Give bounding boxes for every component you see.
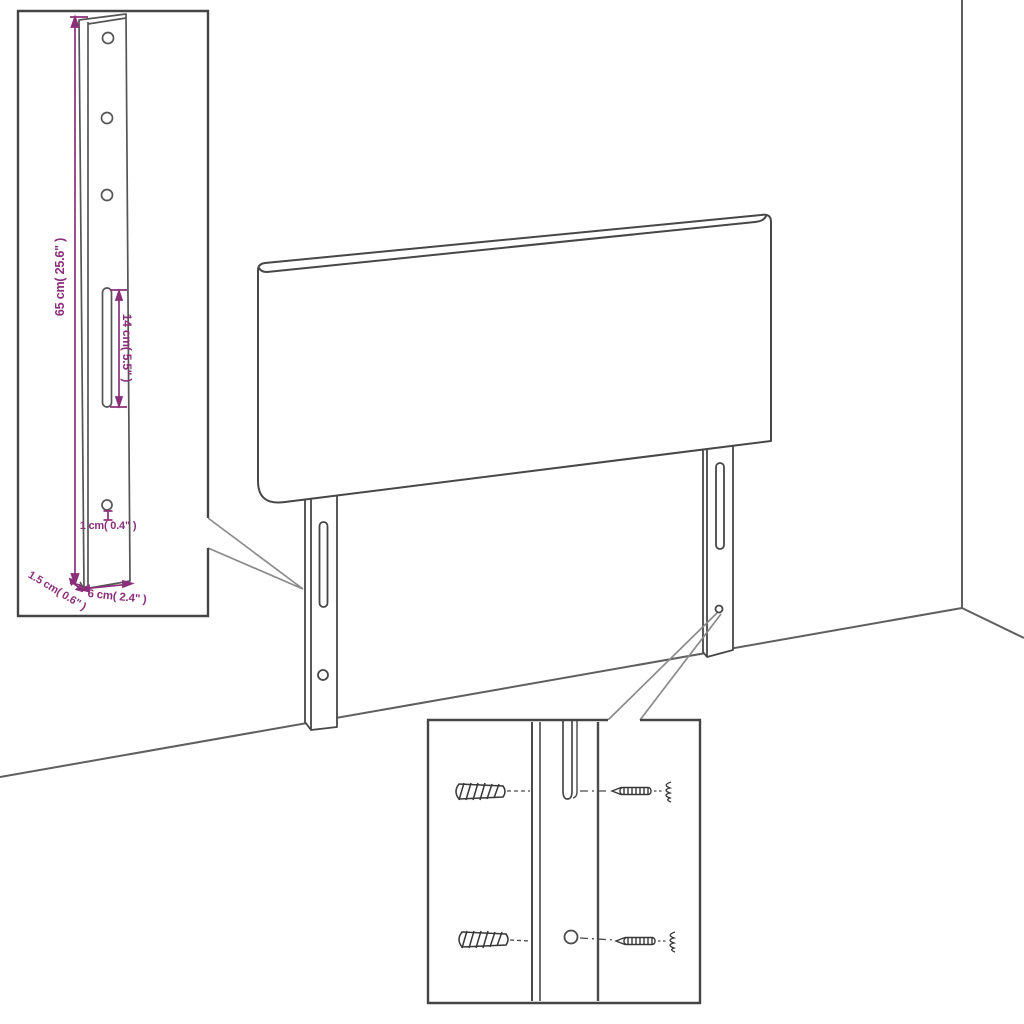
leg-left-body (305, 470, 337, 730)
dimension-label-height: 65 cm( 25.6" ) (53, 238, 67, 316)
headboard-leg-right (703, 440, 733, 657)
bracket-outline (79, 14, 130, 589)
diagram-linework (0, 0, 1024, 1024)
headboard-leg-left (305, 470, 337, 730)
floor-line-right (962, 608, 1024, 638)
bracket-drawing (79, 14, 130, 589)
dimension-label-hole: 1 cm( 0.4" ) (80, 520, 137, 532)
headboard-panel (258, 215, 771, 503)
dimension-label-slot: 14 cm( 5.5" ) (120, 314, 134, 382)
bracket-inset-callout-lines (208, 518, 303, 589)
headboard-dimension-diagram: 65 cm( 25.6" ) 14 cm( 5.5" ) 1 cm( 0.4" … (0, 0, 1024, 1024)
hardware-inset-box (428, 720, 700, 1003)
headboard-panel-outline (258, 215, 771, 503)
